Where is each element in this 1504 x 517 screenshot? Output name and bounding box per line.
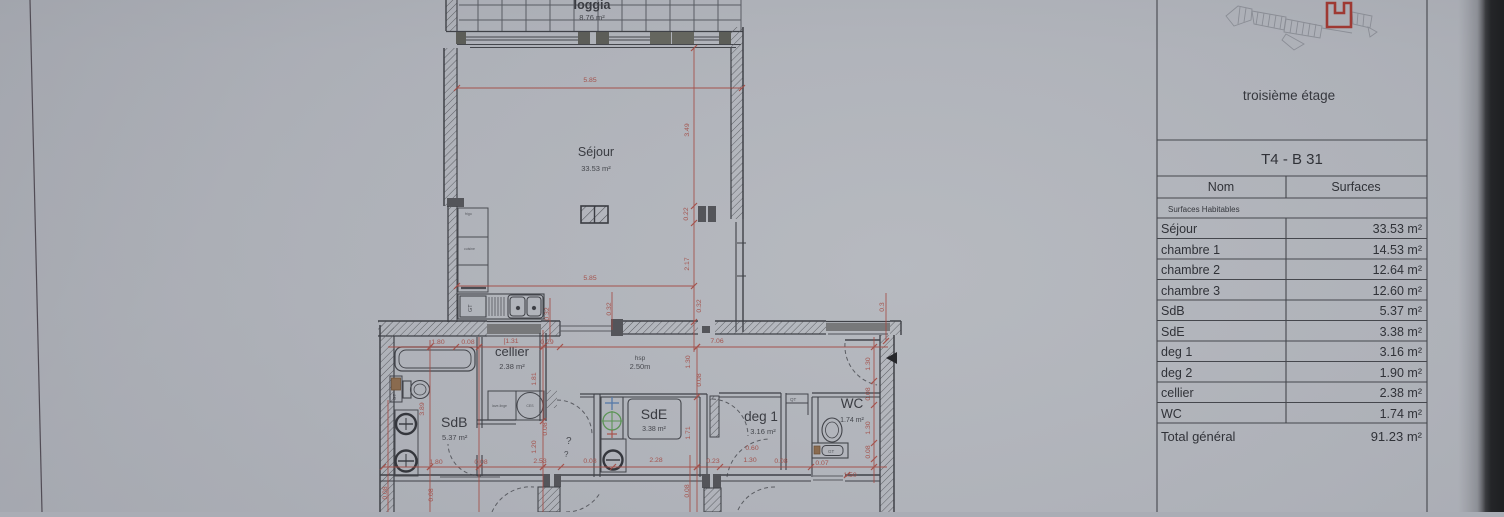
svg-text:1.30: 1.30 (685, 355, 692, 368)
svg-text:Surfaces Habitables: Surfaces Habitables (1168, 205, 1240, 214)
svg-text:1.30: 1.30 (743, 457, 756, 464)
svg-text:Nom: Nom (1208, 180, 1234, 194)
svg-text:1.50: 1.50 (843, 472, 856, 479)
svg-text:1.71: 1.71 (685, 426, 692, 439)
svg-text:0.08: 0.08 (865, 445, 872, 458)
svg-text:Séjour: Séjour (578, 145, 614, 159)
svg-text:0.08: 0.08 (696, 373, 703, 386)
svg-text:GT: GT (392, 393, 397, 400)
svg-text:3.16 m²: 3.16 m² (750, 427, 776, 436)
svg-text:GT: GT (468, 304, 474, 312)
svg-text:WC: WC (1161, 407, 1182, 421)
svg-text:T4 - B 31: T4 - B 31 (1261, 151, 1323, 168)
svg-text:91.23 m²: 91.23 m² (1371, 429, 1423, 444)
svg-text:CES: CES (526, 404, 534, 408)
svg-text:1.30: 1.30 (865, 357, 872, 370)
svg-text:2.38 m²: 2.38 m² (1380, 386, 1422, 400)
svg-text:Séjour: Séjour (1161, 222, 1197, 236)
svg-text:0.08: 0.08 (583, 458, 596, 465)
svg-text:7.06: 7.06 (710, 338, 723, 345)
svg-text:troisième étage: troisième étage (1243, 88, 1335, 103)
svg-text:0.08: 0.08 (428, 488, 435, 501)
svg-text:deg 2: deg 2 (1161, 366, 1192, 380)
svg-text:8.76 m²: 8.76 m² (579, 13, 605, 22)
svg-text:GT: GT (828, 449, 835, 454)
svg-text:3.16 m²: 3.16 m² (1380, 345, 1422, 359)
svg-text:chambre 2: chambre 2 (1161, 263, 1220, 277)
svg-text:33.53 m²: 33.53 m² (581, 164, 611, 173)
svg-text:chambre 1: chambre 1 (1161, 243, 1220, 257)
svg-text:Total général: Total général (1161, 429, 1236, 444)
svg-text:SdE: SdE (641, 406, 667, 422)
svg-text:2.38 m²: 2.38 m² (499, 362, 525, 371)
svg-text:0.08: 0.08 (382, 486, 389, 499)
svg-text:[1.31: [1.31 (503, 338, 518, 345)
svg-text:2.53: 2.53 (533, 458, 546, 465)
svg-text:5.37 m²: 5.37 m² (442, 433, 468, 442)
svg-text:SdB: SdB (441, 414, 467, 430)
svg-text:12.64 m²: 12.64 m² (1373, 263, 1422, 277)
svg-text:33.53 m²: 33.53 m² (1373, 222, 1422, 236)
svg-text:0.60: 0.60 (745, 445, 758, 452)
svg-text:0.29: 0.29 (540, 339, 553, 346)
svg-text:0.23: 0.23 (706, 458, 719, 465)
svg-text:3.38 m²: 3.38 m² (642, 426, 666, 433)
svg-text:1.74 m²: 1.74 m² (1380, 407, 1422, 421)
svg-text:1.80: 1.80 (431, 339, 444, 346)
svg-text:cellier: cellier (495, 344, 530, 359)
svg-text:deg 1: deg 1 (744, 409, 778, 424)
svg-text:cellier: cellier (1161, 386, 1194, 400)
svg-text:0.32: 0.32 (606, 302, 613, 315)
svg-text:frigo: frigo (465, 212, 472, 216)
svg-text:2.17: 2.17 (684, 257, 691, 270)
svg-text:SdE: SdE (1161, 325, 1185, 339)
svg-text:chambre 3: chambre 3 (1161, 284, 1220, 298)
svg-text:?: ? (564, 450, 569, 459)
svg-text:hsp: hsp (635, 355, 646, 362)
svg-text:5.37 m²: 5.37 m² (1380, 304, 1422, 318)
svg-text:1.90 m²: 1.90 m² (1380, 366, 1422, 380)
svg-text:WC: WC (841, 396, 864, 411)
svg-text:3.49: 3.49 (684, 123, 691, 136)
svg-text:2.50m: 2.50m (630, 362, 651, 371)
svg-text:deg 1: deg 1 (1161, 345, 1192, 359)
svg-text:0.08: 0.08 (461, 339, 474, 346)
svg-text:2.28: 2.28 (649, 457, 662, 464)
svg-text:0.08: 0.08 (774, 458, 787, 465)
svg-text:lave-linge: lave-linge (492, 404, 507, 408)
svg-text:loggia: loggia (574, 0, 612, 12)
svg-text:0.3: 0.3 (879, 302, 886, 312)
svg-text:SdB: SdB (1161, 304, 1185, 318)
svg-text:0.08: 0.08 (684, 484, 691, 497)
svg-text:1.30: 1.30 (865, 421, 872, 434)
svg-text:1.20: 1.20 (531, 440, 538, 453)
svg-text:3.89: 3.89 (419, 402, 426, 415)
svg-text:0.32: 0.32 (544, 307, 551, 320)
svg-text:?: ? (566, 436, 572, 447)
svg-text:5.85: 5.85 (583, 77, 596, 84)
svg-text:Surfaces: Surfaces (1331, 180, 1380, 194)
svg-text:3.38 m²: 3.38 m² (1380, 325, 1422, 339)
svg-text:0.08: 0.08 (542, 422, 549, 435)
svg-text:0.07: 0.07 (815, 460, 828, 467)
svg-text:14.53 m²: 14.53 m² (1373, 243, 1422, 257)
svg-text:5.85: 5.85 (583, 275, 596, 282)
svg-text:cuisine: cuisine (464, 247, 475, 251)
svg-text:1.81: 1.81 (531, 372, 538, 385)
svg-text:12.60 m²: 12.60 m² (1373, 284, 1422, 298)
svg-text:0.08: 0.08 (865, 387, 872, 400)
svg-text:QT: QT (790, 397, 797, 402)
svg-text:0.32: 0.32 (696, 299, 703, 312)
svg-text:1.74 m²: 1.74 m² (840, 417, 864, 424)
svg-text:0.22: 0.22 (683, 207, 690, 220)
